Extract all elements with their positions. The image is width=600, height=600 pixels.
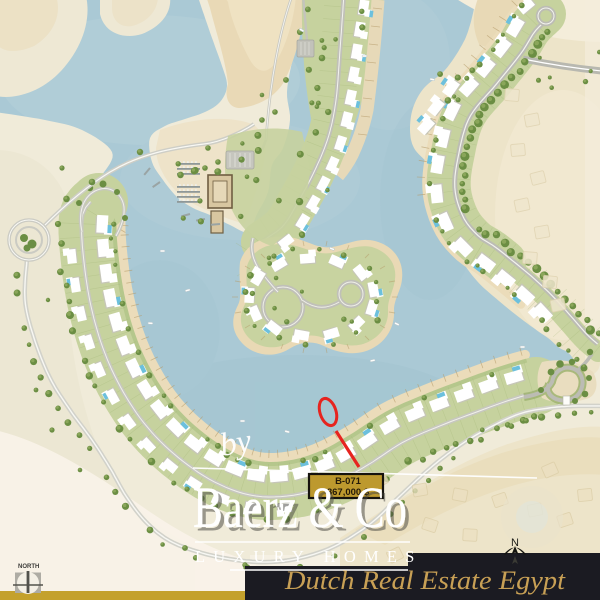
svg-text:LUXURY HOMES: LUXURY HOMES	[195, 547, 423, 566]
svg-text:NORTH: NORTH	[18, 564, 39, 570]
svg-text:Baerz & Co: Baerz & Co	[193, 475, 407, 540]
svg-text:Dutch Real Estate Egypt: Dutch Real Estate Egypt	[284, 566, 566, 595]
svg-text:by: by	[217, 423, 254, 464]
